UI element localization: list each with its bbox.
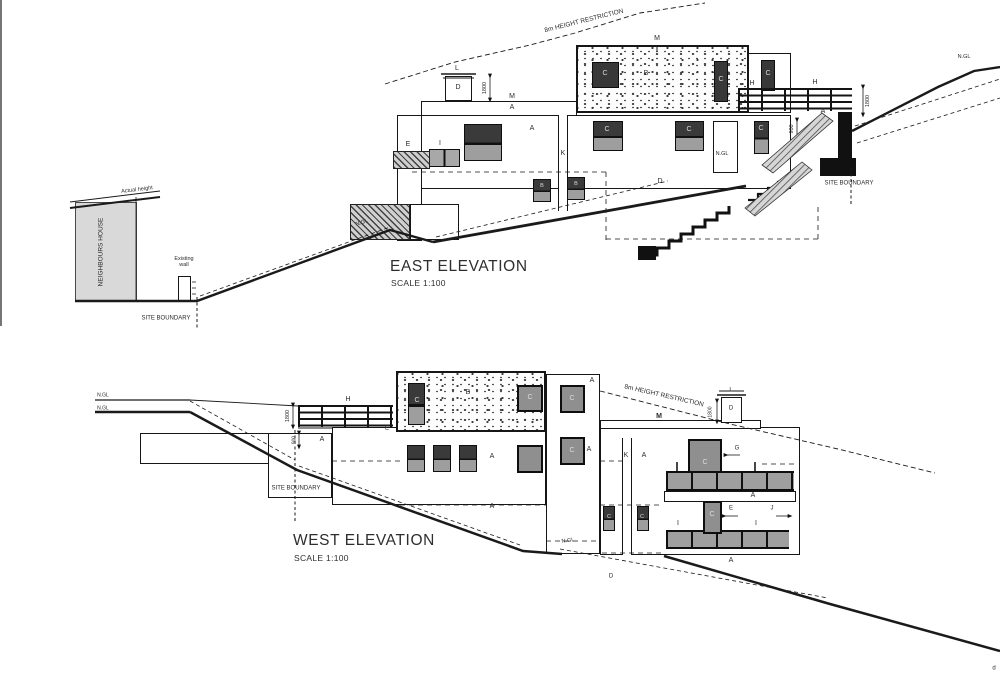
east-roof-slab (421, 101, 577, 116)
site-boundary-label: SITE BOUNDARY (825, 181, 874, 188)
dim-1800: 1800 (285, 410, 291, 422)
west-column-strip (622, 438, 632, 555)
ngl-label: N.GL (97, 406, 109, 412)
balcony-balustrade (666, 471, 794, 491)
window (675, 121, 704, 151)
height-restriction-label: 8m HEIGHT RESTRICTION (544, 8, 624, 35)
retaining-wall (350, 204, 410, 240)
label-h: H (812, 79, 817, 87)
dim-1800: 1800 (865, 95, 871, 107)
east-elevation-scale: SCALE 1:100 (391, 278, 446, 288)
west-terrace-railing (298, 405, 393, 427)
window (433, 445, 451, 472)
label-m: M (509, 93, 515, 101)
actual-height-label: Actual height (121, 185, 153, 195)
east-chimney (445, 76, 472, 101)
dim-1800: 1800 (482, 82, 488, 94)
east-elevation-title: EAST ELEVATION (390, 258, 528, 276)
window (517, 445, 543, 473)
window (761, 60, 775, 91)
boundary-wall-base (820, 158, 856, 176)
window (754, 121, 769, 154)
retaining-wall (393, 151, 430, 169)
window (592, 62, 619, 88)
existing-wall-label: Existing wall (170, 256, 198, 268)
east-site-boundary-lines (197, 168, 851, 329)
west-left-wing-upper (140, 433, 270, 464)
window (408, 383, 425, 425)
ngl-label: N.GL (97, 393, 109, 399)
existing-wall (178, 276, 191, 301)
height-restriction-label: 8m HEIGHT RESTRICTION (624, 383, 705, 408)
drawing-sheet: 8m HEIGHT RESTRICTIONNEIGHBOURS HOUSEAct… (0, 0, 1000, 690)
window (407, 445, 425, 472)
window (459, 445, 477, 472)
site-boundary-label: SITE BOUNDARY (142, 316, 191, 323)
window (593, 121, 623, 151)
basement-window (533, 179, 551, 202)
window (603, 506, 615, 531)
balcony-slab (664, 491, 796, 502)
label-a: A (729, 557, 734, 565)
label-h: H (345, 396, 350, 404)
window (714, 61, 728, 102)
dim-1800: 1800 (708, 406, 714, 417)
window (703, 501, 722, 534)
balcony-balustrade-lower (666, 530, 789, 549)
window (517, 385, 543, 412)
east-base-wall (410, 204, 459, 240)
label-l: L (729, 388, 732, 395)
ngl-label: N.GL (958, 54, 971, 60)
east-door (713, 121, 738, 173)
neighbours-house (75, 202, 137, 301)
stair-base (638, 246, 656, 260)
window (560, 437, 585, 465)
label-m: M (654, 35, 660, 43)
window (429, 149, 460, 167)
west-chimney (721, 397, 742, 423)
window (637, 506, 649, 531)
edge-text: d (992, 666, 995, 673)
basement-window (567, 177, 585, 200)
west-left-wing-lower (268, 433, 332, 498)
label-d: D (609, 574, 613, 581)
west-elevation-scale: SCALE 1:100 (294, 553, 349, 563)
east-stair-railing (738, 88, 852, 111)
window (560, 385, 585, 413)
window (464, 124, 502, 161)
west-elevation-title: WEST ELEVATION (293, 532, 435, 550)
label-l: L (455, 65, 459, 73)
